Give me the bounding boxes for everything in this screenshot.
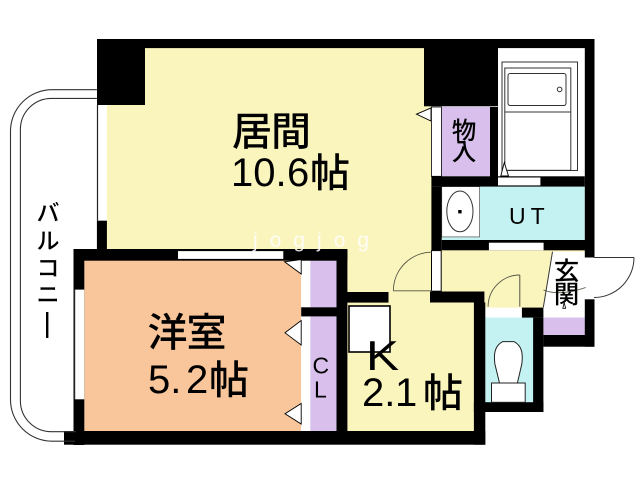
svg-text:2: 2	[186, 358, 208, 402]
svg-text:10.: 10.	[231, 151, 287, 195]
svg-text:6: 6	[287, 151, 309, 195]
svg-text:L: L	[314, 377, 327, 403]
svg-text:C: C	[313, 353, 330, 379]
svg-text:jogjog: jogjog	[252, 229, 381, 252]
svg-text:1: 1	[395, 371, 417, 415]
svg-text:2.: 2.	[362, 371, 395, 415]
svg-text:UT: UT	[509, 203, 550, 229]
svg-text:5.: 5.	[148, 358, 181, 402]
